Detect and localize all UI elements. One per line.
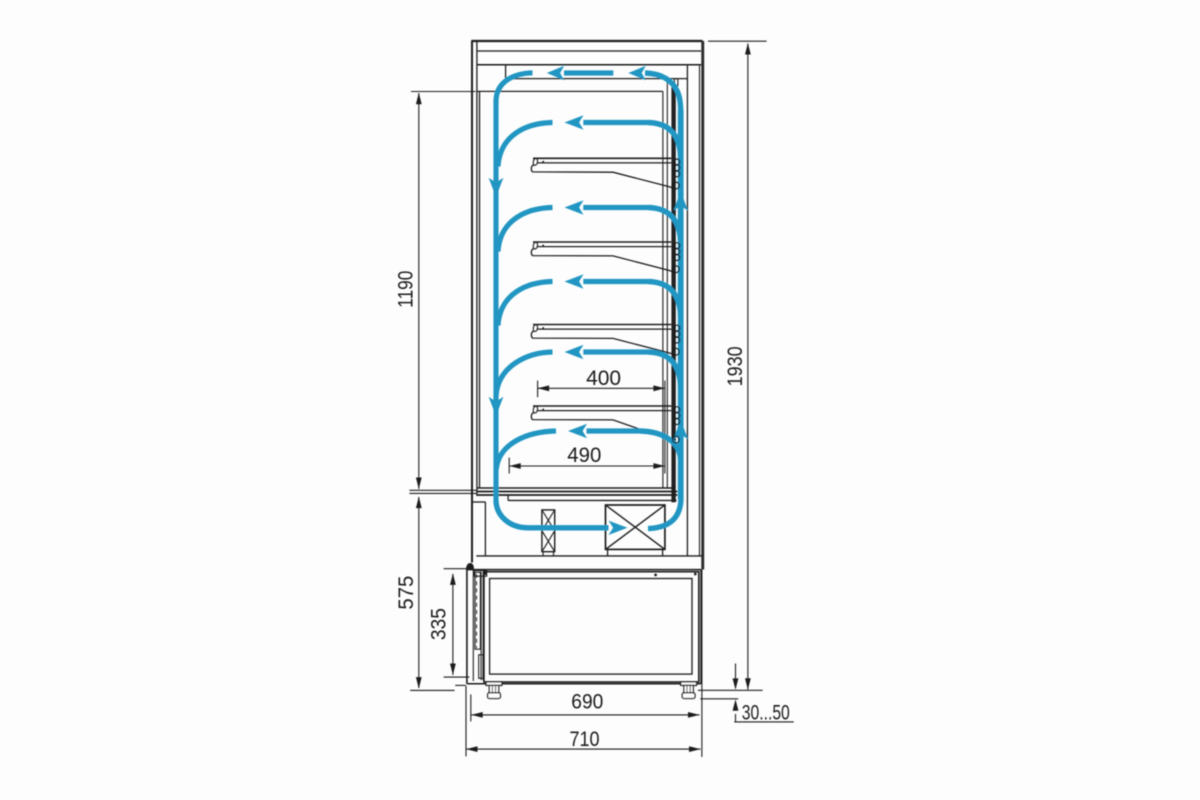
svg-text:335: 335 (428, 608, 451, 640)
svg-text:30...50: 30...50 (742, 701, 790, 724)
svg-text:490: 490 (567, 444, 601, 467)
svg-text:400: 400 (586, 367, 621, 390)
svg-text:710: 710 (570, 728, 600, 751)
svg-text:690: 690 (571, 691, 603, 714)
svg-text:1930: 1930 (724, 346, 747, 386)
svg-text:1190: 1190 (395, 271, 418, 308)
svg-text:575: 575 (395, 576, 418, 610)
